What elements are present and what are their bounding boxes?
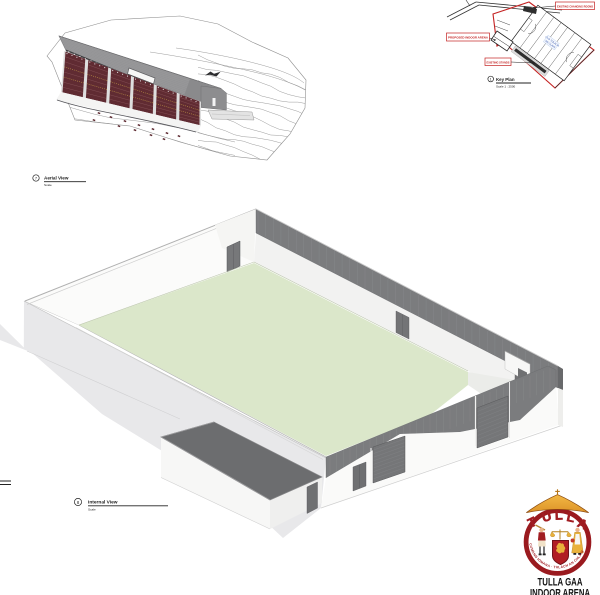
svg-text:Scale: Scale [88,507,96,511]
svg-text:EXISTING STANDS: EXISTING STANDS [487,60,510,64]
svg-text:PROPOSED INDOOR ARENA: PROPOSED INDOOR ARENA [448,36,489,40]
svg-text:Scale: Scale [44,183,52,187]
svg-text:Key Plan: Key Plan [496,77,515,82]
svg-text:1: 1 [490,78,492,82]
svg-text:Internal View: Internal View [88,500,118,506]
svg-text:L: L [555,508,564,523]
svg-text:Aerial View: Aerial View [44,176,69,181]
svg-text:EXISTING CHANGING ROOMS: EXISTING CHANGING ROOMS [557,4,593,8]
svg-text:Scale 1 : 2500: Scale 1 : 2500 [496,84,516,88]
svg-text:INDOOR ARENA: INDOOR ARENA [530,588,590,595]
